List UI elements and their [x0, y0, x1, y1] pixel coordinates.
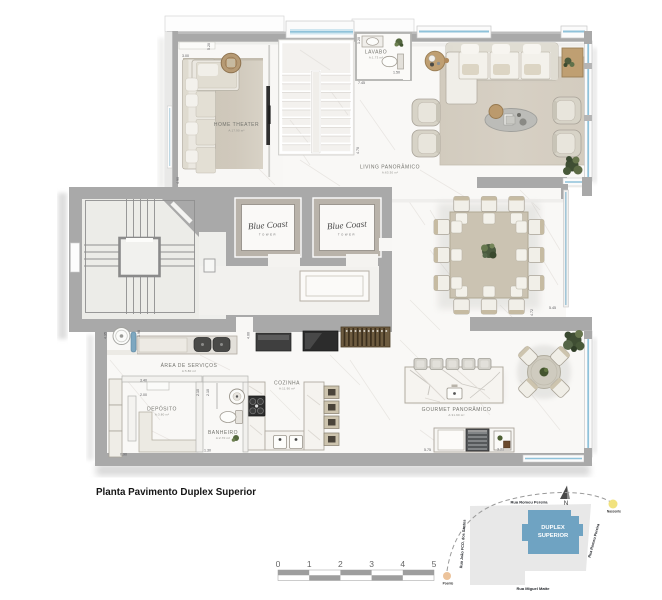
svg-text:Planta Pavimento Duplex Superi: Planta Pavimento Duplex Superior: [96, 487, 256, 498]
svg-text:A:3.80 m²: A:3.80 m²: [155, 413, 169, 417]
svg-text:A:31.90 m²: A:31.90 m²: [448, 413, 464, 417]
svg-text:4.72: 4.72: [530, 309, 534, 316]
svg-text:2: 2: [338, 559, 343, 569]
svg-text:1.30: 1.30: [204, 449, 211, 453]
svg-text:A:63.30 m²: A:63.30 m²: [382, 171, 398, 175]
svg-text:TOWER: TOWER: [338, 233, 356, 237]
svg-text:HOME THEATER: HOME THEATER: [214, 122, 259, 128]
svg-text:DUPLEX: DUPLEX: [541, 525, 565, 531]
svg-text:4.70: 4.70: [356, 147, 360, 154]
svg-text:5.75: 5.75: [424, 448, 431, 452]
svg-text:3: 3: [369, 559, 374, 569]
svg-text:4.00: 4.00: [247, 332, 251, 339]
svg-text:2.10: 2.10: [206, 389, 210, 396]
svg-text:LIVING PANORÂMICO: LIVING PANORÂMICO: [360, 164, 420, 171]
svg-text:A:11.90 m²: A:11.90 m²: [279, 387, 295, 391]
svg-text:3.00: 3.00: [182, 54, 189, 58]
svg-text:4.90: 4.90: [176, 177, 180, 184]
svg-text:1.50: 1.50: [393, 71, 400, 75]
svg-text:1: 1: [307, 559, 312, 569]
svg-text:7.45: 7.45: [358, 81, 365, 85]
svg-text:0.90: 0.90: [120, 453, 127, 457]
svg-text:5: 5: [432, 559, 437, 569]
svg-text:GOURMET PANORÂMICO: GOURMET PANORÂMICO: [422, 406, 492, 413]
svg-text:N: N: [564, 500, 568, 507]
svg-text:A:1.73 m²: A:1.73 m²: [369, 56, 383, 60]
svg-text:0: 0: [276, 559, 281, 569]
svg-text:3.21: 3.21: [497, 448, 504, 452]
svg-text:3.40: 3.40: [140, 379, 147, 383]
svg-text:4.35: 4.35: [104, 332, 108, 339]
svg-text:A:17.90 m²: A:17.90 m²: [228, 129, 244, 133]
svg-text:Poente: Poente: [443, 582, 454, 586]
svg-text:1.20: 1.20: [357, 37, 361, 44]
svg-text:A:2.70 m²: A:2.70 m²: [216, 436, 230, 440]
svg-text:Rua Miguel Matte: Rua Miguel Matte: [517, 586, 551, 591]
svg-text:2.00: 2.00: [140, 393, 147, 397]
svg-text:ÁREA DE SERVIÇOS: ÁREA DE SERVIÇOS: [161, 362, 218, 369]
svg-text:Nascente: Nascente: [607, 510, 621, 514]
svg-text:5.20: 5.20: [207, 43, 211, 50]
svg-text:4: 4: [400, 559, 405, 569]
svg-text:Rua Romeu Pereira: Rua Romeu Pereira: [511, 500, 549, 505]
svg-text:2.10: 2.10: [196, 389, 200, 396]
svg-text:TOWER: TOWER: [259, 233, 277, 237]
svg-text:5.45: 5.45: [549, 306, 556, 310]
svg-text:SUPERIOR: SUPERIOR: [538, 533, 569, 539]
svg-text:1.90: 1.90: [137, 330, 141, 337]
svg-text:DEPÓSITO: DEPÓSITO: [147, 406, 177, 413]
svg-text:A:5.80 m²: A:5.80 m²: [182, 369, 196, 373]
